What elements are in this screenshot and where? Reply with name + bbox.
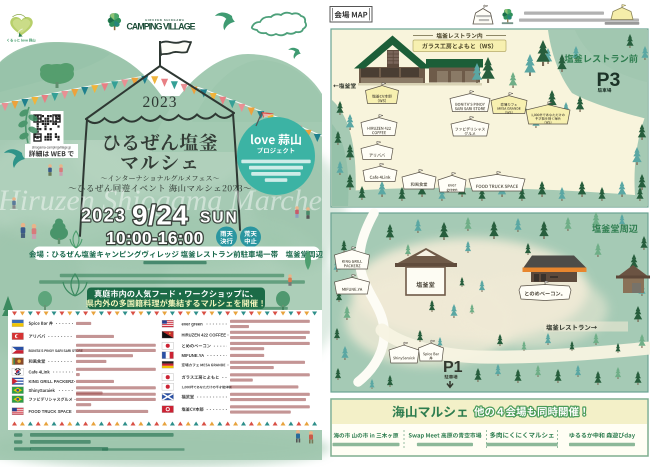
svg-text:ever green: ever green [182,321,204,326]
svg-text:SUN: SUN [200,210,239,227]
svg-text:9/24: 9/24 [132,200,189,231]
svg-text:2023: 2023 [143,94,178,111]
svg-text:CAMPING VILLAGE: CAMPING VILLAGE [127,21,196,31]
svg-text:HIRUZEN 422 COFFEE: HIRUZEN 422 COFFEE [182,332,227,337]
svg-text:ShinySaraiek: ShinySaraiek [29,388,56,393]
svg-text:P3: P3 [597,69,621,91]
svg-text:2023: 2023 [81,206,126,226]
svg-text:Cafe 4Link: Cafe 4Link [29,369,51,374]
svg-text:KING GRILL PACKERZ: KING GRILL PACKERZ [29,379,75,384]
svg-text:P1: P1 [443,359,463,376]
svg-text:MIFUNE.YA: MIFUNE.YA [182,353,205,358]
svg-text:FOOD TRUCK SPACE: FOOD TRUCK SPACE [29,409,72,414]
svg-text:10:00-16:00: 10:00-16:00 [106,228,204,248]
svg-text:shiogama-campingvillage.jp: shiogama-campingvillage.jp [32,146,72,150]
